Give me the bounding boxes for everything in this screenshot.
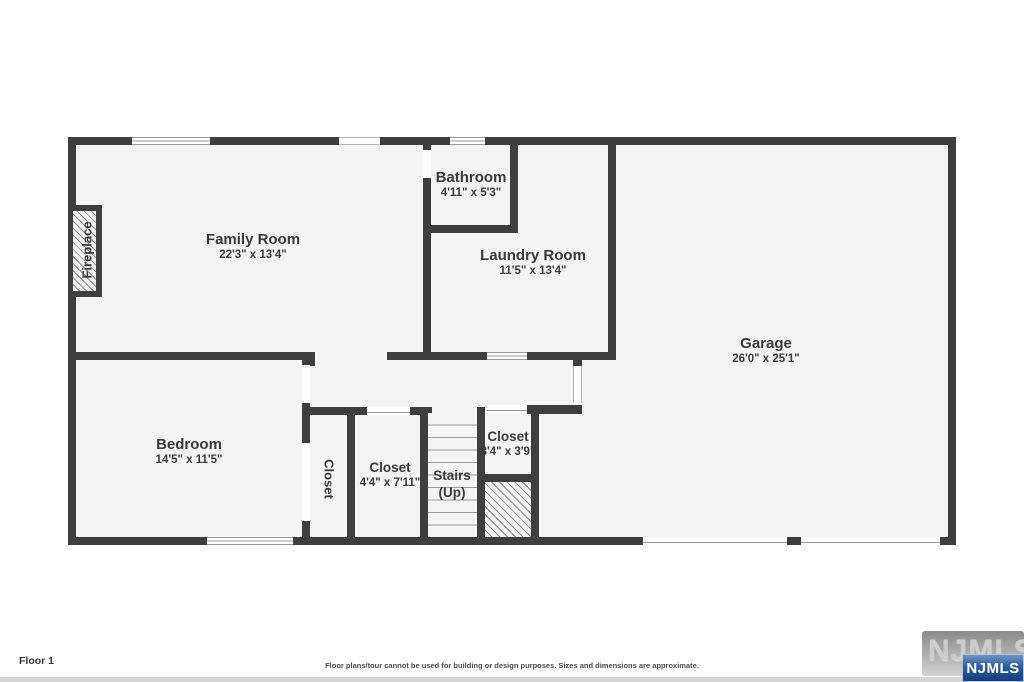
opening-top-wall [339, 137, 380, 145]
wall-right [948, 137, 956, 545]
room-dims: (Up) [433, 485, 471, 501]
room-dims: 11'5" x 13'4" [480, 265, 586, 278]
label-garage: Garage 26'0" x 25'1" [732, 335, 800, 366]
disclaimer-text: Floor plans/tour cannot be used for buil… [325, 661, 699, 670]
label-laundry-room: Laundry Room 11'5" x 13'4" [480, 247, 586, 278]
understairs-hatch [485, 482, 531, 537]
floor-number-label: Floor 1 [19, 655, 54, 667]
wall-garage-divider [608, 145, 616, 360]
room-dims: 14'5" x 11'5" [156, 454, 223, 467]
label-bedroom: Bedroom 14'5" x 11'5" [156, 436, 223, 467]
room-name: Stairs [433, 468, 471, 484]
room-dims: 26'0" x 25'1" [732, 353, 800, 366]
window-bathroom [450, 137, 485, 145]
label-small-closet: Closet 3'4" x 3'9" [481, 429, 536, 459]
label-family-room: Family Room 22'3" x 13'4" [206, 231, 300, 262]
wall-left [68, 137, 76, 545]
wall-bathroom-right [510, 145, 518, 233]
njmls-logo-text: NJMLS [966, 660, 1019, 677]
room-dims: 4'11" x 5'3" [436, 187, 507, 200]
door-small-closet [487, 405, 527, 414]
wall-entry-corner [527, 405, 582, 414]
room-name: Fireplace [80, 221, 95, 278]
label-bedroom-closet: Closet [322, 459, 337, 499]
door-garage-entry [573, 366, 582, 403]
garage-door-right [801, 537, 940, 545]
garage-door-left [643, 537, 787, 545]
room-name: Closet [481, 429, 536, 445]
label-bathroom: Bathroom 4'11" x 5'3" [436, 169, 507, 200]
wall-small-closet-bottom [477, 474, 539, 482]
wall-bathroom-bottom [423, 225, 518, 233]
door-bathroom [423, 150, 431, 178]
door-bedroom [302, 365, 310, 403]
wall-closet-divider [347, 407, 355, 545]
window-family-room [132, 137, 210, 145]
room-dims: 22'3" x 13'4" [206, 249, 300, 262]
room-name: Family Room [206, 231, 300, 248]
room-name: Closet [360, 460, 421, 476]
room-dims: 4'4" x 7'11" [360, 477, 421, 490]
window-laundry [487, 352, 527, 360]
door-hall-closet [367, 407, 410, 415]
label-hall-closet: Closet 4'4" x 7'11" [360, 460, 421, 490]
opening-bedroom-closet [302, 443, 310, 521]
room-dims: 3'4" x 3'9" [481, 446, 536, 459]
wall-stairs-left [420, 407, 428, 545]
room-name: Laundry Room [480, 247, 586, 264]
room-name: Bedroom [156, 436, 223, 453]
window-bedroom [207, 537, 293, 545]
floor-plan-page: Family Room 22'3" x 13'4" Bathroom 4'11"… [0, 0, 1024, 682]
wall-bedroom-top [68, 352, 315, 360]
wall-closet-row-top-a [302, 407, 367, 415]
room-name: Bathroom [436, 169, 507, 186]
njmls-logo-badge: NJMLS [962, 654, 1024, 682]
bottom-edge-strip [0, 677, 1024, 682]
room-name: Garage [732, 335, 800, 352]
room-name: Closet [322, 459, 337, 499]
label-fireplace: Fireplace [80, 221, 95, 278]
label-stairs: Stairs (Up) [433, 468, 471, 500]
wall-bedroom-right-lower [302, 521, 310, 545]
